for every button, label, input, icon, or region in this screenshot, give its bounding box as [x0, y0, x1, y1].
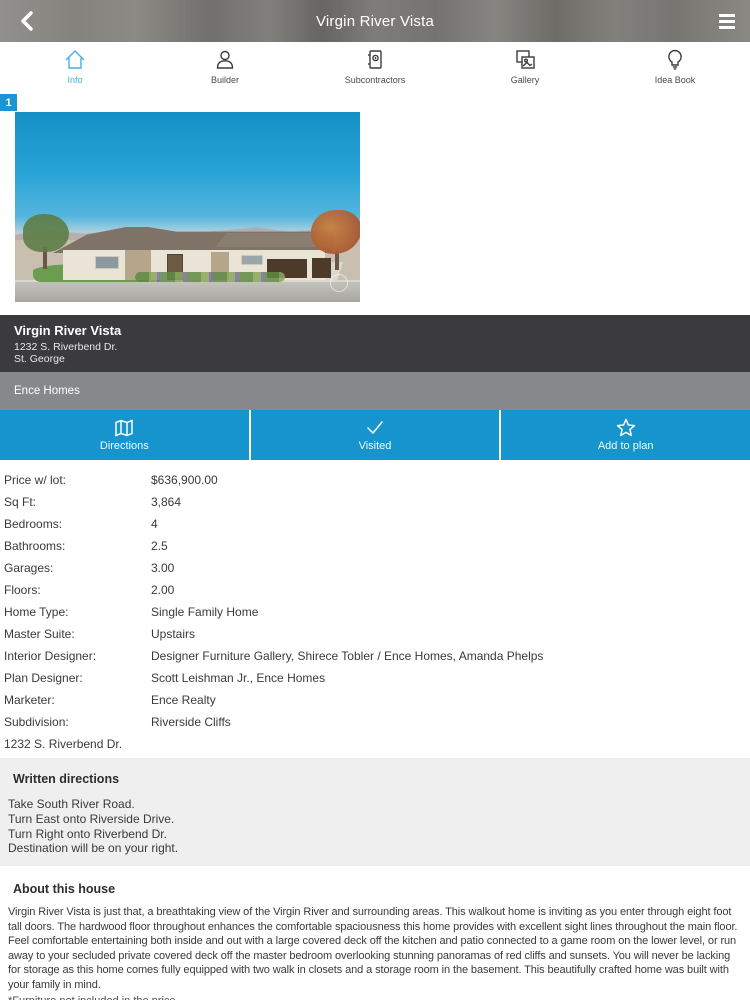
photo-shrubs — [135, 272, 285, 282]
visited-button[interactable]: Visited — [251, 410, 500, 460]
detail-label: Interior Designer: — [0, 649, 151, 663]
direction-line: Turn East onto Riverside Drive. — [8, 812, 742, 827]
hamburger-menu-icon[interactable] — [716, 10, 738, 32]
detail-value: Scott Leishman Jr., Ence Homes — [151, 671, 750, 685]
star-icon — [615, 418, 637, 438]
contact-book-icon — [362, 47, 388, 73]
detail-row: Home Type:Single Family Home — [0, 601, 750, 623]
direction-line: Turn Right onto Riverbend Dr. — [8, 827, 742, 842]
detail-label: Master Suite: — [0, 627, 151, 641]
detail-label: Sq Ft: — [0, 495, 151, 509]
listing-photo[interactable] — [15, 112, 360, 302]
tab-idea-book[interactable]: Idea Book — [600, 42, 750, 90]
detail-value: 3,864 — [151, 495, 750, 509]
action-label: Add to plan — [598, 440, 654, 452]
action-button-row: Directions Visited Add to plan — [0, 410, 750, 460]
photo-window — [241, 255, 263, 265]
detail-row: Plan Designer:Scott Leishman Jr., Ence H… — [0, 667, 750, 689]
house-icon — [62, 47, 88, 73]
tab-builder[interactable]: Builder — [150, 42, 300, 90]
detail-row: Price w/ lot:$636,900.00 — [0, 469, 750, 491]
detail-value: 4 — [151, 517, 750, 531]
action-label: Directions — [100, 440, 149, 452]
about-section: About this house Virgin River Vista is j… — [0, 866, 750, 992]
listing-address-line2: St. George — [14, 354, 750, 366]
add-to-plan-button[interactable]: Add to plan — [501, 410, 750, 460]
person-icon — [212, 47, 238, 73]
map-icon — [113, 418, 135, 438]
tab-label: Gallery — [511, 75, 540, 85]
detail-row: Marketer:Ence Realty — [0, 689, 750, 711]
detail-row: Subdivision:Riverside Cliffs — [0, 711, 750, 733]
tab-subcontractors[interactable]: Subcontractors — [300, 42, 450, 90]
listing-address-line1: 1232 S. Riverbend Dr. — [14, 342, 750, 354]
detail-row: Sq Ft:3,864 — [0, 491, 750, 513]
about-heading: About this house — [8, 882, 742, 896]
detail-label: Bathrooms: — [0, 539, 151, 553]
action-label: Visited — [359, 440, 392, 452]
tab-gallery[interactable]: Gallery — [450, 42, 600, 90]
tab-label: Info — [67, 75, 82, 85]
detail-label: Plan Designer: — [0, 671, 151, 685]
detail-value: 2.5 — [151, 539, 750, 553]
detail-value: Riverside Cliffs — [151, 715, 750, 729]
listing-detail-page: Virgin River Vista Info Builder Subcontr… — [0, 0, 750, 1000]
photo-garage-door — [312, 258, 331, 278]
tab-bar: Info Builder Subcontractors Gallery — [0, 42, 750, 90]
written-directions-heading: Written directions — [8, 772, 742, 786]
detail-label: Price w/ lot: — [0, 473, 151, 487]
photo-watermark — [330, 274, 348, 292]
listing-street-address: 1232 S. Riverbend Dr. — [0, 733, 750, 755]
photo-window — [95, 256, 119, 269]
tab-label: Builder — [211, 75, 239, 85]
detail-value: Ence Realty — [151, 693, 750, 707]
detail-value: Single Family Home — [151, 605, 750, 619]
check-icon — [363, 418, 387, 438]
page-title: Virgin River Vista — [316, 13, 434, 30]
detail-label: Garages: — [0, 561, 151, 575]
written-directions-box: Written directions Take South River Road… — [0, 758, 750, 866]
detail-label: Bedrooms: — [0, 517, 151, 531]
detail-label: Home Type: — [0, 605, 151, 619]
directions-button[interactable]: Directions — [0, 410, 249, 460]
listing-header-bar: Virgin River Vista 1232 S. Riverbend Dr.… — [0, 315, 750, 372]
tab-label: Subcontractors — [345, 75, 406, 85]
detail-row: Master Suite:Upstairs — [0, 623, 750, 645]
detail-row: Bedrooms:4 — [0, 513, 750, 535]
lightbulb-icon — [662, 47, 688, 73]
listing-name: Virgin River Vista — [14, 323, 750, 338]
direction-line: Destination will be on your right. — [8, 841, 742, 856]
detail-label: Marketer: — [0, 693, 151, 707]
photo-count-badge: 1 — [0, 94, 17, 111]
about-body: Virgin River Vista is just that, a breat… — [8, 905, 742, 992]
photo-section: 1 — [0, 90, 750, 315]
back-button[interactable] — [12, 6, 42, 36]
detail-value: $636,900.00 — [151, 473, 750, 487]
detail-value: 3.00 — [151, 561, 750, 575]
detail-row: Garages:3.00 — [0, 557, 750, 579]
details-list: Price w/ lot:$636,900.00 Sq Ft:3,864 Bed… — [0, 469, 750, 733]
direction-line: Take South River Road. — [8, 797, 742, 812]
detail-row: Bathrooms:2.5 — [0, 535, 750, 557]
detail-label: Floors: — [0, 583, 151, 597]
detail-row: Interior Designer:Designer Furniture Gal… — [0, 645, 750, 667]
detail-value: 2.00 — [151, 583, 750, 597]
app-header: Virgin River Vista — [0, 0, 750, 42]
chevron-left-icon — [20, 11, 34, 31]
detail-label: Subdivision: — [0, 715, 151, 729]
photos-icon — [512, 47, 538, 73]
photo-tree — [23, 214, 69, 252]
detail-value: Designer Furniture Gallery, Shirece Tobl… — [151, 649, 750, 663]
about-footnote: *Furniture not included in the price — [0, 995, 750, 1000]
tab-info[interactable]: Info — [0, 42, 150, 90]
builder-bar[interactable]: Ence Homes — [0, 372, 750, 410]
detail-row: Floors:2.00 — [0, 579, 750, 601]
detail-value: Upstairs — [151, 627, 750, 641]
tab-label: Idea Book — [655, 75, 696, 85]
photo-road — [15, 280, 360, 302]
